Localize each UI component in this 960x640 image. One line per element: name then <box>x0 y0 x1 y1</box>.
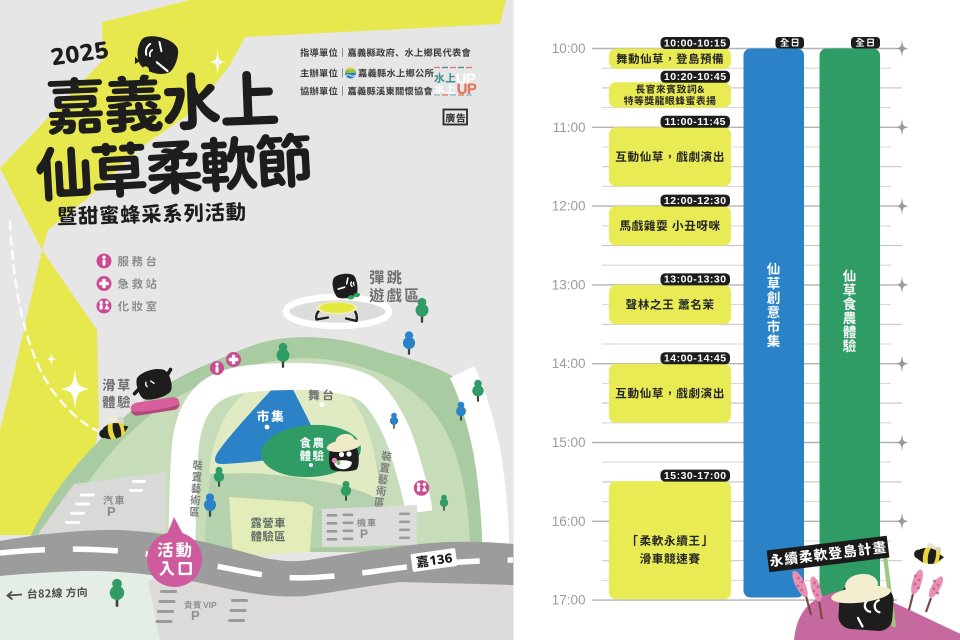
svg-text:14:00: 14:00 <box>552 356 586 371</box>
svg-text:12:00: 12:00 <box>552 199 586 214</box>
svg-text:P: P <box>107 504 116 519</box>
svg-text:10:00: 10:00 <box>552 41 586 56</box>
svg-text:10:20-10:45: 10:20-10:45 <box>664 71 727 83</box>
svg-text:13:00-13:30: 13:00-13:30 <box>664 274 727 286</box>
svg-text:11:00-11:45: 11:00-11:45 <box>664 116 726 128</box>
svg-text:15:30-17:00: 15:30-17:00 <box>664 470 727 482</box>
svg-text:17:00: 17:00 <box>552 593 586 608</box>
svg-text:13:00: 13:00 <box>552 277 586 292</box>
svg-text:P: P <box>191 608 200 623</box>
svg-text:P: P <box>360 527 368 541</box>
svg-text:15:00: 15:00 <box>552 435 586 450</box>
svg-text:14:00-14:45: 14:00-14:45 <box>664 353 727 365</box>
svg-text:11:00: 11:00 <box>553 120 586 135</box>
svg-text:16:00: 16:00 <box>552 514 586 529</box>
svg-text:12:00-12:30: 12:00-12:30 <box>664 195 727 207</box>
svg-text:VIP: VIP <box>203 600 217 610</box>
svg-text:10:00-10:15: 10:00-10:15 <box>664 37 727 49</box>
